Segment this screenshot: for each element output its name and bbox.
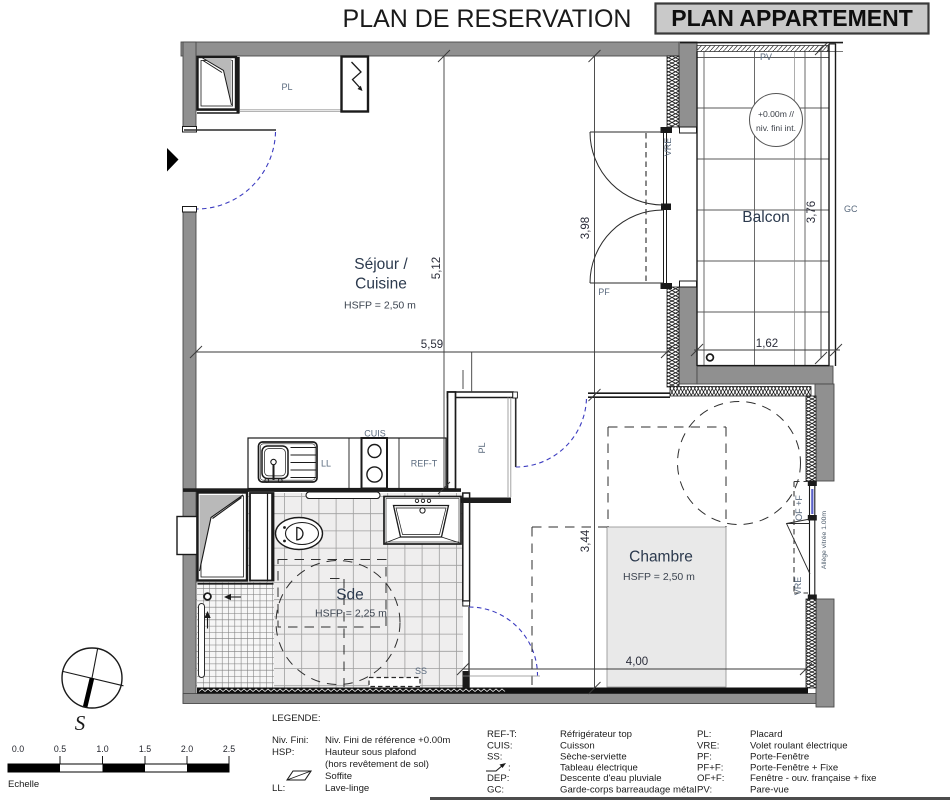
- svg-text:REF-T: REF-T: [411, 459, 438, 469]
- svg-text:PF+F:: PF+F:: [697, 763, 723, 774]
- svg-text:Cuisson: Cuisson: [560, 741, 595, 752]
- svg-text:HSFP = 2,25 m: HSFP = 2,25 m: [315, 608, 387, 620]
- svg-text:SS:: SS:: [487, 752, 502, 763]
- svg-text:LEGENDE:: LEGENDE:: [272, 713, 321, 724]
- svg-text:Séjour /: Séjour /: [354, 256, 408, 273]
- svg-text:Porte-Fenêtre + Fixe: Porte-Fenêtre + Fixe: [750, 763, 838, 774]
- svg-text:PLAN DE RESERVATION: PLAN DE RESERVATION: [343, 5, 632, 33]
- svg-text:2.0: 2.0: [181, 744, 193, 754]
- svg-text:HSFP = 2,50 m: HSFP = 2,50 m: [344, 300, 416, 312]
- svg-text:4,00: 4,00: [626, 656, 648, 668]
- svg-text:VRE:: VRE:: [697, 741, 719, 752]
- svg-text:PL: PL: [477, 442, 487, 453]
- svg-text:Niv. Fini de référence +0.00m: Niv. Fini de référence +0.00m: [325, 735, 450, 746]
- svg-text:PF: PF: [598, 287, 610, 297]
- svg-text:Fenêtre - ouv. française + fix: Fenêtre - ouv. française + fixe: [750, 773, 876, 784]
- svg-text:REF-T:: REF-T:: [487, 729, 517, 740]
- svg-text:Allège vitrée 1.00m: Allège vitrée 1.00m: [821, 511, 828, 570]
- svg-text:GC:: GC:: [487, 785, 504, 796]
- svg-text:2.5: 2.5: [223, 744, 235, 754]
- svg-text:+0.00m //: +0.00m //: [758, 109, 795, 119]
- svg-text:DEP:: DEP:: [487, 773, 509, 784]
- svg-text:Sde: Sde: [336, 587, 364, 604]
- svg-text:Réfrigérateur top: Réfrigérateur top: [560, 729, 632, 740]
- svg-text:HSP:: HSP:: [272, 747, 294, 758]
- svg-text:Hauteur sous plafond: Hauteur sous plafond: [325, 747, 416, 758]
- svg-text:PL: PL: [281, 82, 292, 92]
- svg-text:PV:: PV:: [697, 785, 712, 796]
- svg-text:Volet roulant électrique: Volet roulant électrique: [750, 741, 848, 752]
- svg-text:Niv. Fini:: Niv. Fini:: [272, 735, 309, 746]
- svg-text:Chambre: Chambre: [629, 549, 693, 566]
- svg-text:S: S: [75, 711, 86, 735]
- svg-text:CUIS: CUIS: [364, 429, 386, 439]
- svg-text:Soffite: Soffite: [325, 771, 352, 782]
- svg-text:(hors revêtement de sol): (hors revêtement de sol): [325, 759, 429, 770]
- svg-text:Garde-corps barreaudage métal: Garde-corps barreaudage métal: [560, 785, 697, 796]
- svg-text:PL:: PL:: [697, 729, 711, 740]
- svg-text:LL:: LL:: [272, 783, 285, 794]
- svg-text:HSFP = 2,50 m: HSFP = 2,50 m: [623, 571, 695, 583]
- svg-text:Placard: Placard: [750, 729, 783, 740]
- svg-text:OF +F: OF +F: [794, 495, 804, 521]
- svg-text:niv. fini int.: niv. fini int.: [756, 123, 796, 133]
- svg-text:VRE: VRE: [793, 577, 803, 596]
- svg-text:PV: PV: [760, 52, 772, 62]
- svg-text:Tableau électrique: Tableau électrique: [560, 763, 638, 774]
- svg-text:Lave-linge: Lave-linge: [325, 783, 369, 794]
- svg-text:PF:: PF:: [697, 752, 712, 763]
- svg-text:LL: LL: [321, 459, 331, 469]
- svg-text:Pare-vue: Pare-vue: [750, 785, 789, 796]
- svg-text:0.0: 0.0: [12, 744, 24, 754]
- svg-text:CUIS:: CUIS:: [487, 741, 513, 752]
- svg-text:Echelle: Echelle: [8, 779, 39, 790]
- svg-text:1.5: 1.5: [139, 744, 151, 754]
- svg-text:Porte-Fenêtre: Porte-Fenêtre: [750, 752, 809, 763]
- svg-text:Balcon: Balcon: [742, 209, 789, 226]
- svg-text:PLAN APPARTEMENT: PLAN APPARTEMENT: [671, 5, 913, 31]
- svg-text:1.0: 1.0: [96, 744, 108, 754]
- svg-text:3,44: 3,44: [580, 529, 592, 552]
- svg-text:OF+F:: OF+F:: [697, 773, 724, 784]
- svg-text:1,62: 1,62: [756, 338, 778, 350]
- svg-text:5,12: 5,12: [431, 257, 443, 279]
- svg-text:GC: GC: [844, 204, 858, 214]
- svg-text:0.5: 0.5: [54, 744, 66, 754]
- svg-text:3,76: 3,76: [806, 201, 818, 223]
- svg-text:5,59: 5,59: [421, 339, 443, 351]
- svg-text::: :: [508, 763, 511, 774]
- svg-text:VRE: VRE: [663, 138, 673, 157]
- svg-text:Cuisine: Cuisine: [355, 276, 407, 293]
- svg-text:Sèche-serviette: Sèche-serviette: [560, 752, 627, 763]
- svg-text:3,98: 3,98: [580, 217, 592, 239]
- svg-text:Descente d'eau pluviale: Descente d'eau pluviale: [560, 773, 662, 784]
- svg-text:SS: SS: [415, 666, 427, 676]
